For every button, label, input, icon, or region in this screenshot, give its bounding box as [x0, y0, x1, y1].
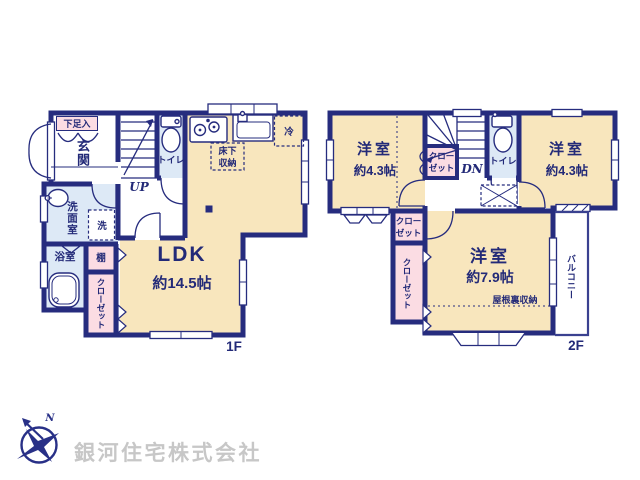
toilet-1f-label: トイレ: [157, 153, 185, 166]
ldk-size-label: 約14.5帖: [130, 272, 234, 293]
shoe-cabinet-label: 下足入: [56, 116, 98, 131]
entry-label: 玄関: [73, 131, 92, 175]
kitchen-stove: [190, 117, 227, 142]
bath-window: [41, 262, 48, 288]
window-awnings: [344, 215, 387, 223]
floor1-label: 1F: [212, 339, 256, 354]
kitchen-right-window: [302, 140, 309, 204]
ldk-door: [135, 213, 160, 238]
bedroom-east-size: 約4.3帖: [532, 160, 602, 179]
floor2-label: 2F: [556, 338, 596, 353]
bedroom-east-top-window: [552, 110, 582, 117]
toilet-fixture-1f: [161, 116, 181, 152]
toilet-2f-label: トイレ: [487, 154, 519, 167]
floor-plan-page: 下足入 玄関 トイレ UP 床下 収納 冷 洗面室 洗 浴室 棚 クローゼット …: [0, 0, 640, 480]
balcony-label: バルコニー: [565, 242, 578, 310]
north-label: N: [42, 413, 58, 424]
stairwell-window: [453, 110, 481, 117]
stairs-up-label: UP: [117, 180, 161, 194]
compass-bird-logo: [17, 418, 59, 463]
staircase-1f: [121, 119, 157, 178]
attic-storage-label: 屋根裏収納: [482, 293, 548, 306]
closet-small-label: クロー ゼット: [394, 215, 423, 239]
bedroom-east-label: 洋室: [532, 138, 602, 159]
underfloor-storage-label: 床下 収納: [211, 143, 244, 170]
entry-door-opening: [48, 122, 55, 180]
kitchen-post: [206, 206, 213, 213]
bedroom-west-label: 洋室: [340, 138, 410, 159]
closet-1f-label: クローゼット: [95, 275, 107, 331]
bay-window: [452, 333, 525, 346]
bedroom-main-label: 洋室: [440, 242, 540, 267]
ldk-label: LDK: [130, 243, 234, 267]
toilet-1f-door: [161, 178, 185, 204]
company-name: 銀河住宅株式会社: [74, 437, 262, 467]
bedroom-main-size: 約7.9帖: [440, 267, 540, 287]
floor-plan-canvas: [0, 0, 640, 480]
closet-tall-label: クローゼット: [401, 247, 413, 319]
bedroom-west-south-window: [341, 208, 389, 215]
bedroom-main-balcony-window: [550, 238, 557, 306]
bath-label: 浴室: [50, 249, 80, 264]
bathtub: [49, 273, 79, 307]
washroom-label: 洗面室: [65, 192, 80, 244]
stairs-down-label: DN: [452, 162, 492, 176]
washer-label: 洗: [92, 218, 112, 232]
kitchen-sink: [233, 112, 273, 142]
fridge-label: 冷: [274, 124, 304, 138]
shelf-label: 棚: [92, 250, 110, 264]
bedroom-west-size: 約4.3帖: [340, 160, 410, 179]
